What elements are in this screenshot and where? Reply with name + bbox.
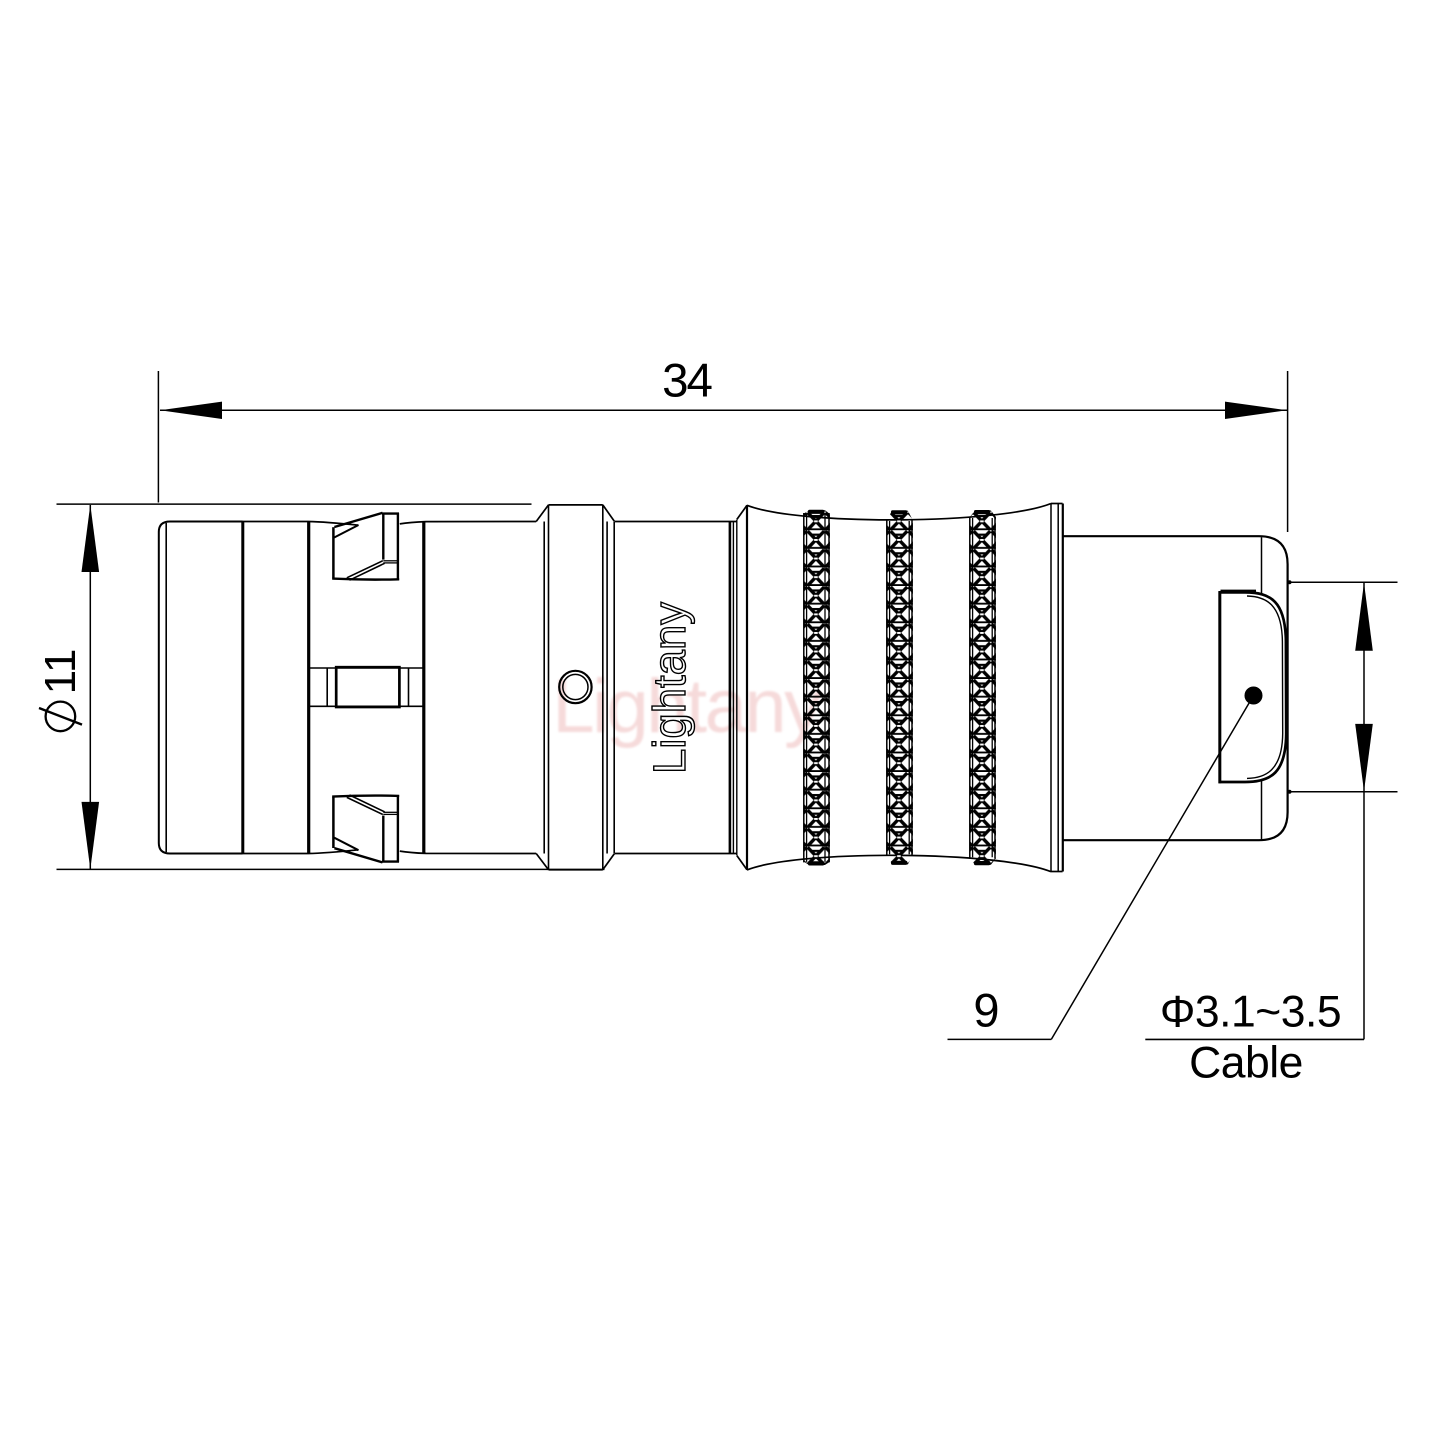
svg-text:Lightany: Lightany (644, 602, 695, 774)
svg-text:Φ3.1~3.5: Φ3.1~3.5 (1160, 988, 1341, 1037)
svg-text:34: 34 (662, 355, 712, 408)
svg-text:9: 9 (973, 984, 999, 1037)
svg-text:Cable: Cable (1189, 1039, 1303, 1088)
svg-text:11: 11 (36, 649, 85, 695)
